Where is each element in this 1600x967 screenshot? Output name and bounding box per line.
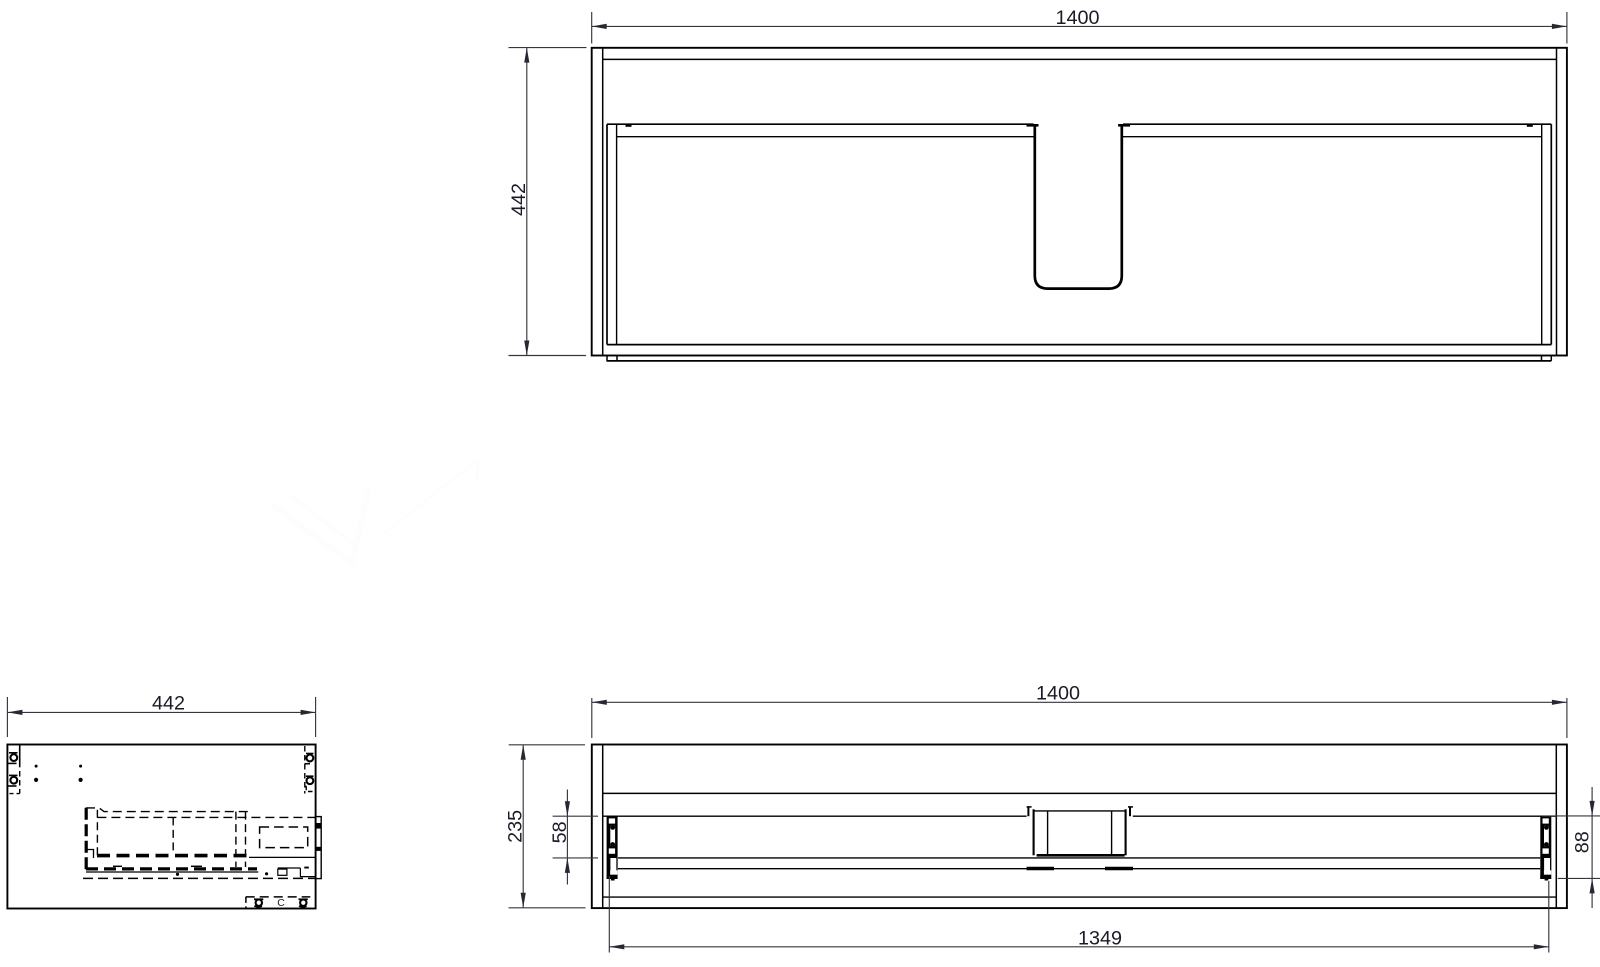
svg-text:88: 88 <box>1571 831 1593 853</box>
svg-text:58: 58 <box>549 821 571 843</box>
svg-text:1349: 1349 <box>1078 928 1122 950</box>
svg-text:442: 442 <box>508 183 530 216</box>
svg-text:1400: 1400 <box>1036 683 1080 705</box>
svg-text:1400: 1400 <box>1055 7 1099 29</box>
svg-text:442: 442 <box>152 692 185 714</box>
svg-text:C: C <box>277 897 285 909</box>
svg-text:235: 235 <box>505 810 527 843</box>
